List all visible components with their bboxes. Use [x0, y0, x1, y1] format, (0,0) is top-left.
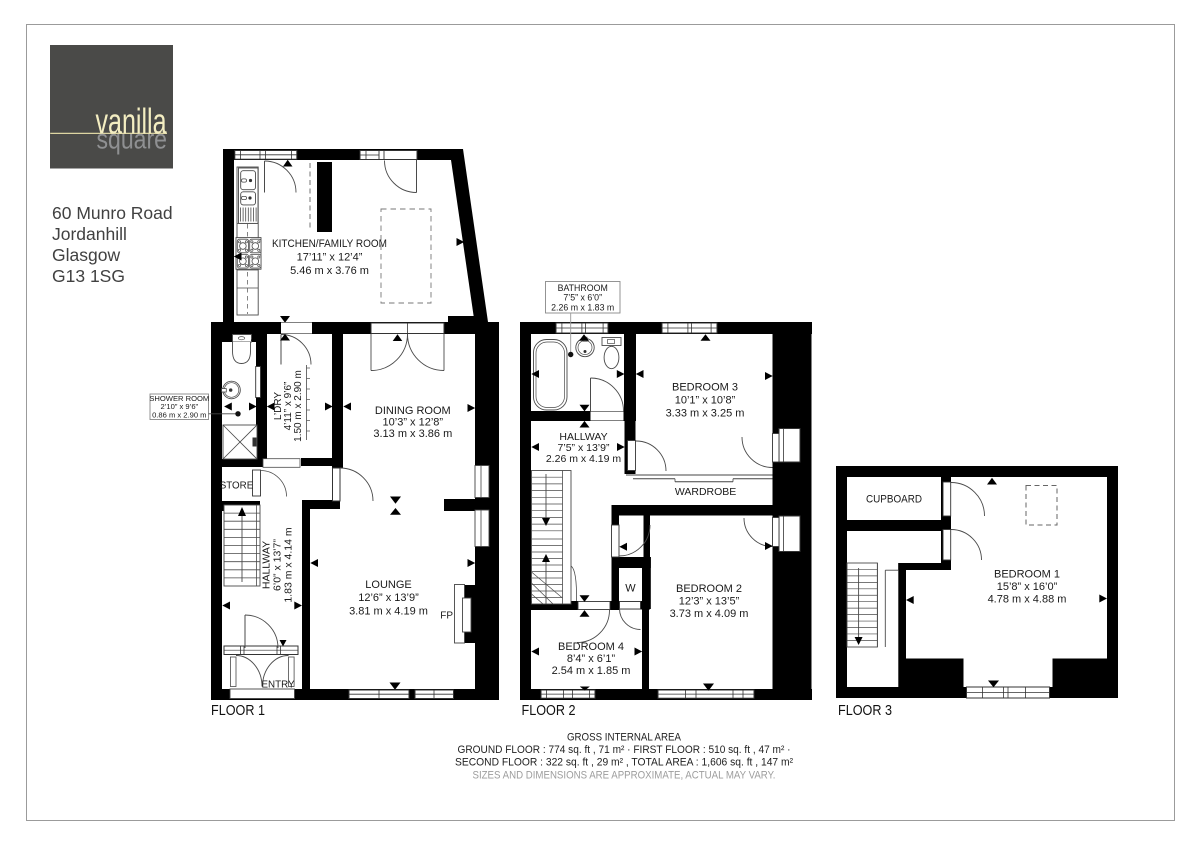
svg-text:BEDROOM 1: BEDROOM 1 [994, 569, 1060, 581]
svg-text:vanilla: vanilla [96, 101, 168, 142]
svg-text:LOUNGE: LOUNGE [365, 579, 411, 591]
svg-text:12’6” x 13’9”: 12’6” x 13’9” [358, 592, 419, 604]
svg-text:SECOND FLOOR : 322 sq. ft , 29: SECOND FLOOR : 322 sq. ft , 29 m² , TOTA… [455, 757, 793, 769]
svg-text:BEDROOM 3: BEDROOM 3 [672, 382, 738, 394]
svg-text:DINING ROOM: DINING ROOM [375, 405, 451, 417]
svg-text:Jordanhill: Jordanhill [52, 224, 127, 244]
svg-text:GROUND FLOOR : 774 sq. ft , 71: GROUND FLOOR : 774 sq. ft , 71 m² · FIRS… [458, 744, 791, 756]
svg-text:10’3” x 12’8”: 10’3” x 12’8” [383, 417, 444, 429]
svg-text:G13 1SG: G13 1SG [52, 266, 125, 286]
svg-text:10’1” x 10’8”: 10’1” x 10’8” [675, 395, 736, 407]
svg-text:12’3” x 13’5”: 12’3” x 13’5” [679, 596, 740, 608]
svg-text:3.73 m x 4.09 m: 3.73 m x 4.09 m [670, 608, 749, 620]
svg-text:BEDROOM 2: BEDROOM 2 [676, 583, 742, 595]
svg-text:3.33 m x 3.25 m: 3.33 m x 3.25 m [666, 408, 745, 420]
svg-text:15’8” x 16’0”: 15’8” x 16’0” [997, 581, 1058, 593]
svg-text:17’11” x 12’4”: 17’11” x 12’4” [297, 252, 363, 264]
svg-text:FLOOR 3: FLOOR 3 [838, 703, 892, 719]
svg-text:CUPBOARD: CUPBOARD [866, 494, 922, 506]
svg-text:3.13 m x 3.86 m: 3.13 m x 3.86 m [373, 428, 452, 440]
svg-text:2.26 m x 1.83 m: 2.26 m x 1.83 m [551, 302, 614, 312]
svg-text:1.83 m x 4.14 m: 1.83 m x 4.14 m [283, 527, 295, 603]
svg-text:WARDROBE: WARDROBE [675, 486, 736, 498]
svg-text:KITCHEN/FAMILY ROOM: KITCHEN/FAMILY ROOM [272, 238, 387, 250]
svg-text:1.50 m x 2.90 m: 1.50 m x 2.90 m [293, 370, 304, 442]
svg-text:BATHROOM: BATHROOM [558, 283, 608, 293]
svg-text:60 Munro Road: 60 Munro Road [52, 203, 173, 223]
svg-text:2.26 m x 4.19 m: 2.26 m x 4.19 m [546, 453, 622, 465]
svg-text:4.78 m x 4.88 m: 4.78 m x 4.88 m [988, 594, 1067, 606]
svg-text:W: W [625, 583, 636, 595]
svg-text:2.54 m x 1.85 m: 2.54 m x 1.85 m [552, 665, 631, 677]
svg-text:Glasgow: Glasgow [52, 245, 120, 265]
svg-text:BEDROOM 4: BEDROOM 4 [558, 641, 624, 653]
svg-text:8’4” x 6’1”: 8’4” x 6’1” [567, 653, 616, 665]
svg-text:0.86 m x 2.90 m: 0.86 m x 2.90 m [152, 410, 206, 419]
svg-text:STORE: STORE [220, 481, 254, 492]
svg-text:7’5” x 6’0”: 7’5” x 6’0” [563, 293, 602, 303]
svg-text:SIZES AND DIMENSIONS ARE APPRO: SIZES AND DIMENSIONS ARE APPROXIMATE, AC… [473, 770, 776, 782]
svg-text:5.46 m x 3.76 m: 5.46 m x 3.76 m [290, 265, 369, 277]
svg-text:FLOOR 1: FLOOR 1 [211, 703, 265, 719]
svg-text:FLOOR 2: FLOOR 2 [522, 703, 576, 719]
svg-text:3.81 m x 4.19 m: 3.81 m x 4.19 m [349, 606, 428, 618]
svg-text:ENTRY: ENTRY [261, 680, 294, 691]
svg-text:GROSS INTERNAL AREA: GROSS INTERNAL AREA [567, 732, 682, 744]
svg-text:FP: FP [440, 611, 453, 622]
